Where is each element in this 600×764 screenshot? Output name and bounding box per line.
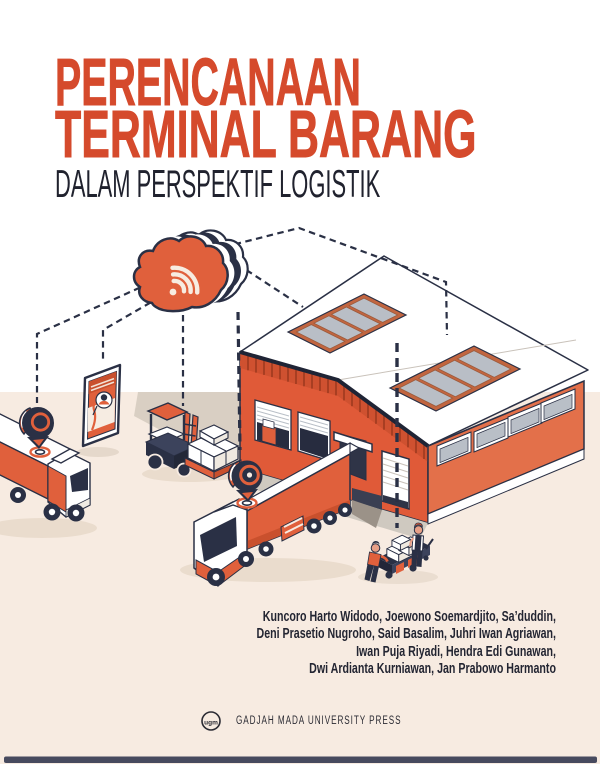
- svg-text:ugm: ugm: [204, 720, 218, 727]
